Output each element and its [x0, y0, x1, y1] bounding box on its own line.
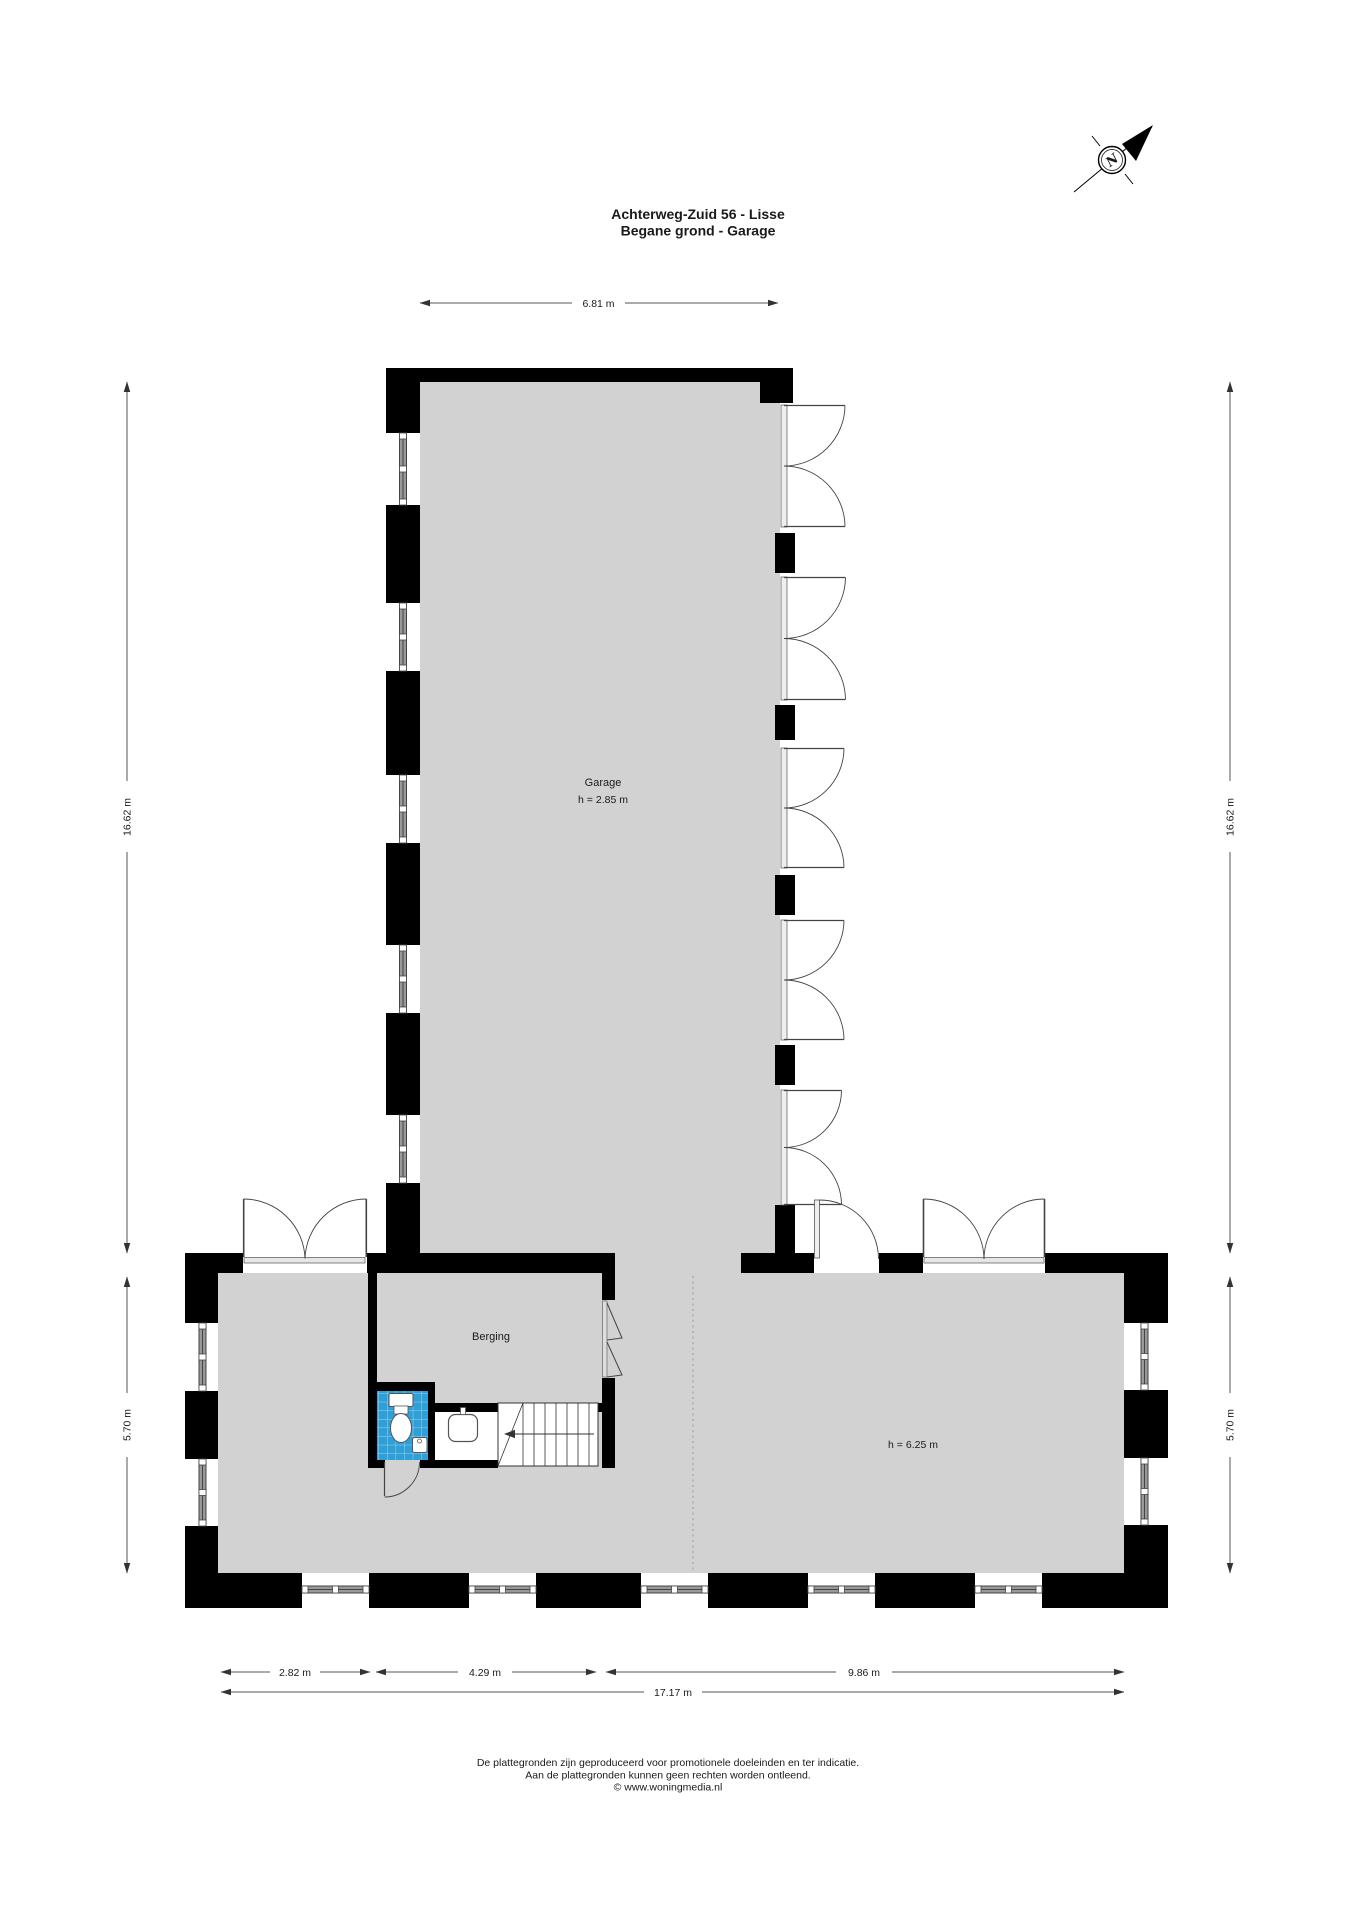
wall-segment: [386, 671, 420, 775]
wall-segment: [708, 1573, 808, 1608]
compass-tick-se: [1125, 174, 1133, 184]
wall-segment: [775, 1205, 795, 1253]
wall-segment: [775, 533, 795, 573]
wall-segment: [185, 1253, 218, 1323]
berging-label: Berging: [472, 1331, 510, 1343]
dim-bottom-total: 17.17 m: [654, 1687, 692, 1699]
garage-door-pair: [781, 405, 845, 527]
garage-door-pair: [781, 748, 844, 868]
wall-segment: [386, 505, 420, 603]
wall-segment: [386, 1183, 420, 1253]
window: [199, 1459, 206, 1526]
window: [302, 1586, 369, 1593]
wall-segment: [386, 368, 420, 433]
wall-segment: [602, 1255, 615, 1300]
wall-segment: [367, 1253, 615, 1273]
compass-tick-nw: [1092, 136, 1100, 146]
dim-garage-depth-right: 16.62 m: [1225, 798, 1237, 836]
staircase: [498, 1403, 598, 1466]
toilet-bowl: [391, 1414, 412, 1443]
wall-segment: [760, 368, 793, 403]
wall-segment: [368, 1460, 385, 1468]
wall-segment: [368, 1382, 435, 1391]
garage-label: Garage: [585, 777, 622, 789]
dim-bottom-3: 9.86 m: [848, 1667, 880, 1679]
footer-disclaimer-1: De plattegronden zijn geproduceerd voor …: [477, 1757, 859, 1769]
toilet-cistern: [389, 1394, 413, 1407]
footer-copyright: © www.woningmedia.nl: [614, 1782, 723, 1794]
floor: [218, 1273, 1124, 1573]
wall-segment: [1124, 1253, 1168, 1323]
wall-segment: [775, 875, 795, 915]
compass-arrow-icon: [1122, 125, 1153, 161]
window: [199, 1323, 206, 1391]
north-compass: N: [1074, 125, 1153, 192]
window: [808, 1586, 875, 1593]
washbasin-nook: [435, 1408, 498, 1461]
wall-segment: [775, 705, 795, 740]
window: [400, 433, 407, 505]
window: [1141, 1458, 1148, 1525]
dim-lower-depth-right: 5.70 m: [1225, 1409, 1237, 1441]
dim-garage-width: 6.81 m: [582, 298, 614, 310]
floor-areas: [218, 382, 1124, 1573]
washbasin: [449, 1415, 478, 1442]
floorplan-sheet: Garage h = 2.85 m Berging h = 6.25 m 6.8…: [0, 0, 1358, 1920]
toilet-base: [394, 1406, 408, 1414]
dim-bottom-1: 2.82 m: [279, 1667, 311, 1679]
floorplan-drawing: Garage h = 2.85 m Berging h = 6.25 m 6.8…: [0, 0, 1358, 1920]
footer-disclaimer-2: Aan de plattegronden kunnen geen rechten…: [525, 1770, 810, 1782]
wall-segment: [775, 1045, 795, 1085]
floor: [615, 1253, 741, 1273]
wall-segment: [189, 1573, 302, 1608]
floor: [420, 382, 780, 1253]
wall-segment: [1045, 1253, 1124, 1273]
corner-sink: [413, 1438, 428, 1453]
window: [1141, 1323, 1148, 1390]
wall-segment: [420, 1460, 498, 1468]
wall-segment: [1124, 1527, 1168, 1608]
wall-segment: [185, 1391, 218, 1459]
plan-title: Achterweg-Zuid 56 - Lisse: [611, 206, 785, 222]
wall-segment: [386, 1013, 420, 1115]
wall-segment: [386, 843, 420, 945]
window: [400, 603, 407, 671]
window: [400, 775, 407, 843]
dim-bottom-2: 4.29 m: [469, 1667, 501, 1679]
double-door-west: [244, 1199, 367, 1263]
wall-segment: [1042, 1573, 1124, 1608]
dim-garage-depth-left: 16.62 m: [122, 798, 134, 836]
wall-segment: [536, 1573, 641, 1608]
wall-segment: [602, 1378, 615, 1468]
wall-segment: [741, 1253, 814, 1273]
window: [641, 1586, 708, 1593]
wall-segment: [369, 1573, 469, 1608]
window: [400, 945, 407, 1013]
garage-height-label: h = 2.85 m: [578, 794, 628, 806]
bathroom: [377, 1391, 428, 1460]
garage-door-pair: [781, 920, 844, 1040]
wall-segment: [1124, 1390, 1168, 1458]
window: [975, 1586, 1042, 1593]
window: [469, 1586, 536, 1593]
wall-segment: [386, 368, 793, 382]
hall-height-label: h = 6.25 m: [888, 1439, 938, 1451]
wall-segment: [368, 1255, 377, 1468]
single-door-north: [815, 1200, 879, 1259]
window: [400, 1115, 407, 1183]
dim-lower-depth-left: 5.70 m: [122, 1409, 134, 1441]
wall-segment: [875, 1573, 975, 1608]
garage-door-pair: [781, 577, 846, 700]
garage-door-pair: [781, 1090, 842, 1205]
plan-subtitle: Begane grond - Garage: [621, 223, 776, 239]
washbasin-tap-icon: [461, 1408, 466, 1415]
wall-segment: [428, 1382, 435, 1468]
double-door-north-east: [924, 1199, 1045, 1263]
wall-segment: [879, 1253, 923, 1273]
